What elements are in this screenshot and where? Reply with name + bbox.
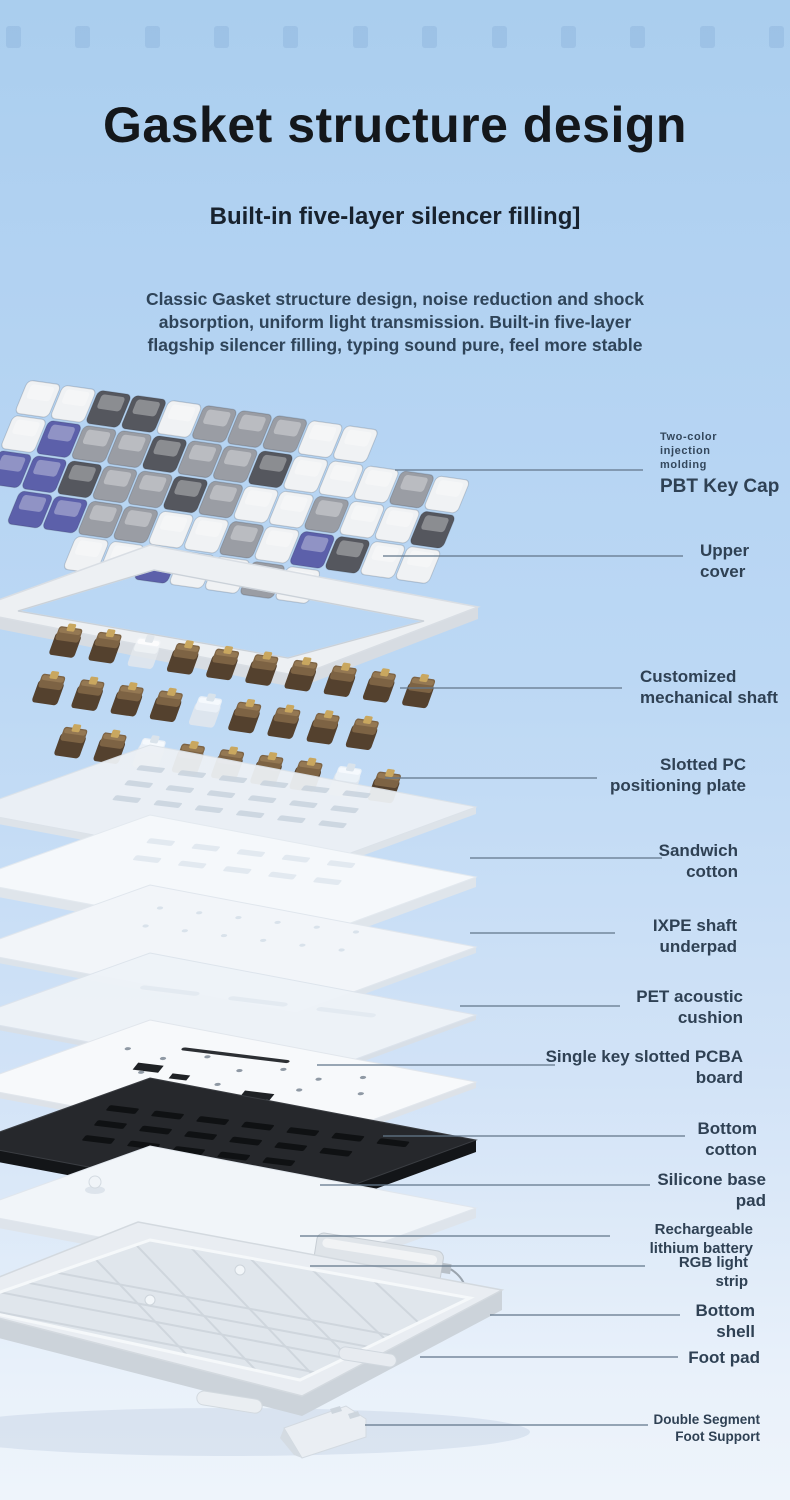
- callout-pet-cushion: PET acoustic cushion: [636, 986, 743, 1028]
- callout-ixpe-underpad: IXPE shaft underpad: [653, 915, 737, 957]
- description-line-3: flagship silencer filling, typing sound …: [0, 334, 790, 357]
- callout-bottom-shell: Bottom shell: [696, 1300, 755, 1342]
- description-line-2: absorption, uniform light transmission. …: [0, 311, 790, 334]
- callout-note: Two-color injection molding: [660, 430, 779, 472]
- callout-pbt-key-cap: Two-color injection molding PBT Key Cap: [660, 430, 779, 498]
- callout-foot-support: Double Segment Foot Support: [653, 1411, 760, 1445]
- description-line-1: Classic Gasket structure design, noise r…: [0, 288, 790, 311]
- callout-silicone-base-pad: Silicone base pad: [657, 1169, 766, 1211]
- page-description: Classic Gasket structure design, noise r…: [0, 288, 790, 357]
- callout-pcba-board: Single key slotted PCBA board: [546, 1046, 743, 1088]
- page-title: Gasket structure design: [0, 96, 790, 154]
- callout-foot-pad: Foot pad: [688, 1347, 760, 1368]
- callout-mechanical-shaft: Customized mechanical shaft: [640, 666, 778, 708]
- callout-text: PBT Key Cap: [660, 475, 779, 498]
- bottom-shell-layer-graphic: [0, 1222, 530, 1456]
- callout-rgb-light-strip: RGB light strip: [679, 1253, 748, 1291]
- callout-upper-cover: Upper cover: [700, 540, 749, 582]
- callout-sandwich-cotton: Sandwich cotton: [659, 840, 738, 882]
- page-subtitle: Built-in five-layer silencer filling]: [0, 203, 790, 231]
- callout-positioning-plate: Slotted PC positioning plate: [610, 754, 746, 796]
- callout-bottom-cotton: Bottom cotton: [698, 1118, 757, 1160]
